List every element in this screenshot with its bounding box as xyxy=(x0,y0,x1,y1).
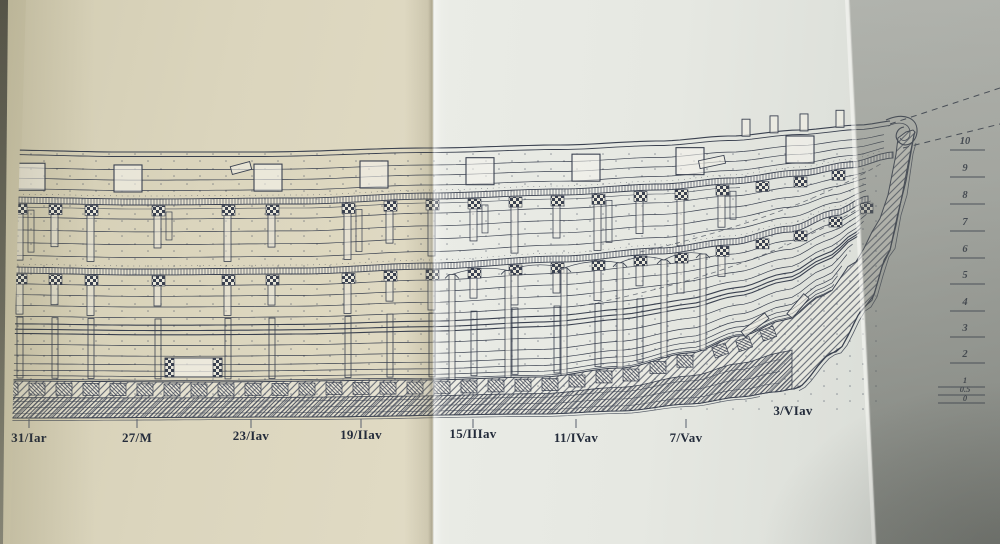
folded-plate-section xyxy=(0,0,1000,544)
station-label: 27/M xyxy=(122,430,152,446)
left-page xyxy=(0,0,1000,544)
station-label: 7/Vav xyxy=(670,430,703,446)
waterline-number: 6 xyxy=(950,244,980,255)
station-label: 3/VIav xyxy=(773,403,812,419)
station-label: 11/IVav xyxy=(554,430,598,446)
waterline-number: 3 xyxy=(950,323,980,334)
waterline-number: 5 xyxy=(950,270,980,281)
photo-left-edge xyxy=(0,0,1000,544)
waterline-number: 10 xyxy=(950,136,980,147)
waterline-number: 7 xyxy=(950,217,980,228)
plate-crease-highlight xyxy=(0,0,1000,544)
right-page xyxy=(433,0,1000,544)
ship-longitudinal-section-drawing xyxy=(0,0,1000,544)
station-label: 31/Iar xyxy=(11,430,47,446)
waterline-number: 9 xyxy=(950,163,980,174)
plate-crease-shadow xyxy=(0,0,1000,544)
station-label: 19/IIav xyxy=(340,427,382,443)
station-label: 15/IIIav xyxy=(449,426,496,442)
waterline-number: 4 xyxy=(950,297,980,308)
ship-plan-photo: 31/Iar 27/M 23/Iav 19/IIav 15/IIIav 11/I… xyxy=(0,0,1000,544)
waterline-number: 0.5 xyxy=(950,384,980,394)
station-label: 23/Iav xyxy=(233,428,269,444)
waterline-number: 2 xyxy=(950,349,980,360)
waterline-number: 0 xyxy=(950,393,980,403)
under-page-edge xyxy=(0,0,1000,544)
corner-vignette xyxy=(0,0,1000,544)
center-fold-shadow xyxy=(404,0,452,544)
waterline-number: 8 xyxy=(950,190,980,201)
left-page-shading xyxy=(0,0,95,544)
waterline-number: 1 xyxy=(950,375,980,385)
